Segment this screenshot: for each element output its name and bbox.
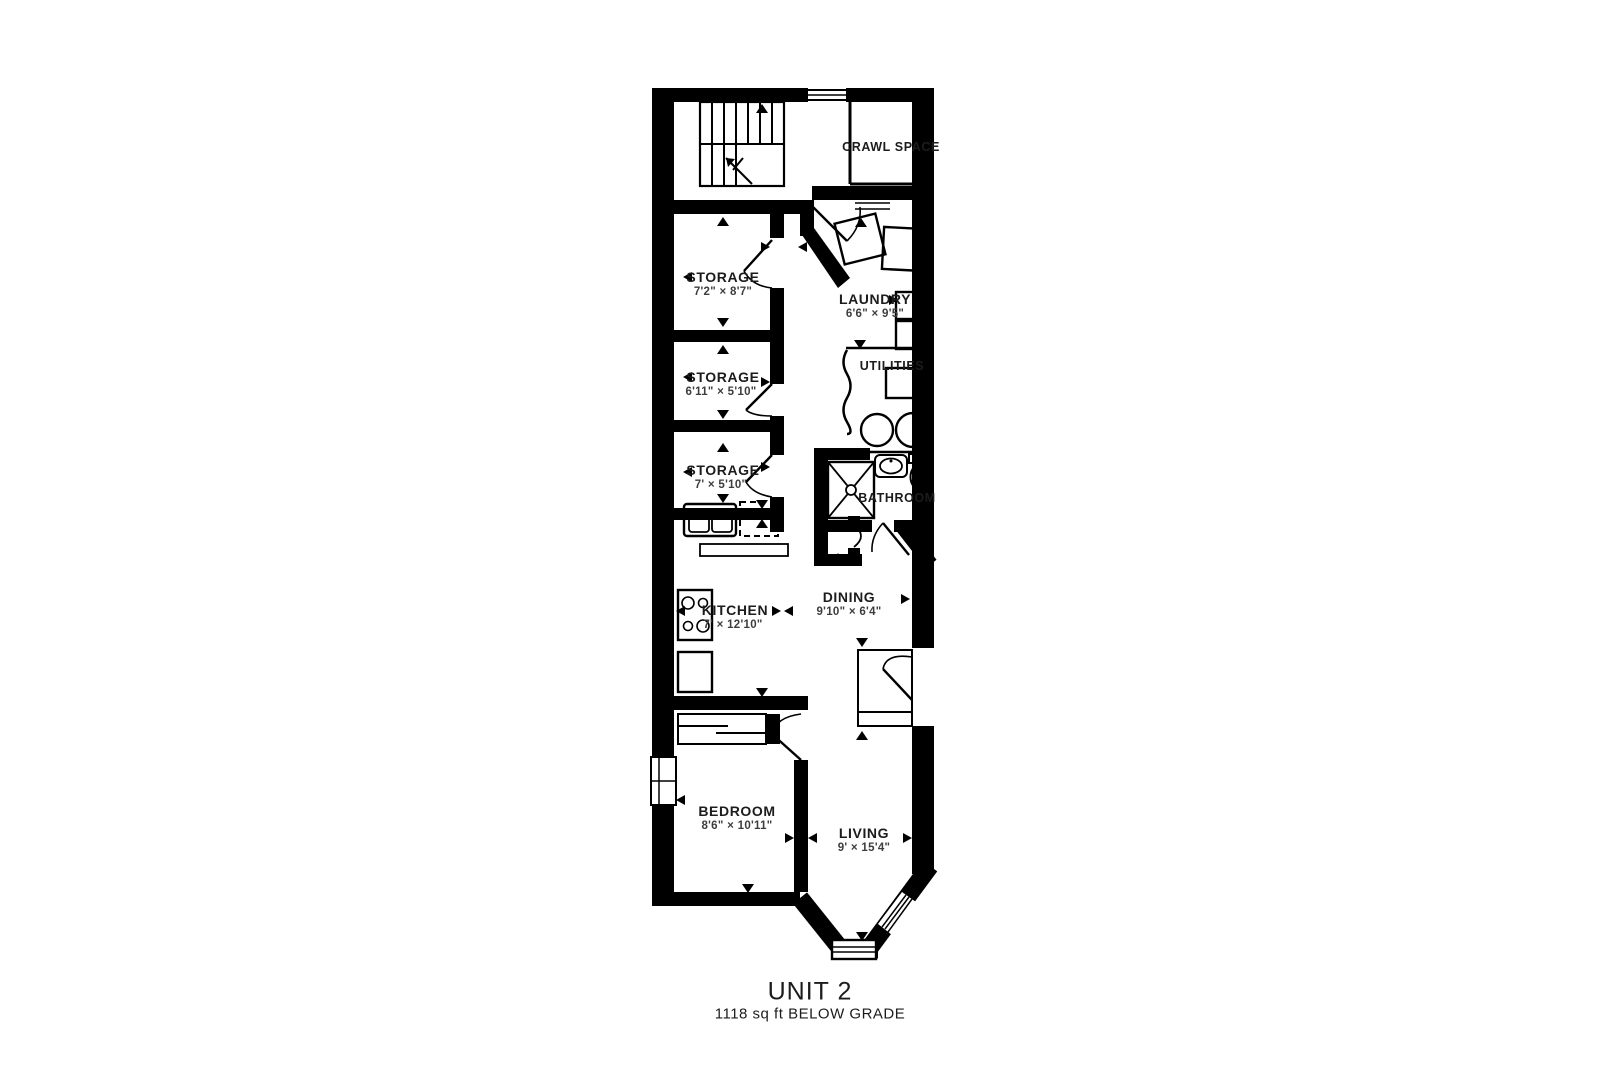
storage-3-label: STORAGE [686, 462, 759, 478]
dining-label: DINING [823, 589, 876, 605]
shower-icon [828, 462, 874, 518]
bedroom-window-icon [651, 757, 676, 805]
bedroom-label: BEDROOM [698, 803, 775, 819]
entry-door-arc [883, 656, 912, 669]
utilities-label: UTILITIES [860, 359, 924, 373]
unit-area-subtitle: 1118 sq ft BELOW GRADE [715, 1006, 906, 1023]
top-window-icon [806, 88, 848, 102]
crawl-space-label: CRAWL SPACE [842, 140, 940, 154]
bay-bottom-window-icon [832, 940, 876, 959]
fridge-icon [678, 652, 712, 692]
kitchen-label: KITCHEN [702, 602, 768, 618]
dining-dims: 9'10" × 6'4" [816, 606, 881, 618]
bathroom-label: BATHROOM [858, 491, 935, 505]
storage-2-label: STORAGE [686, 369, 759, 385]
bedroom-dims: 8'6" × 10'11" [701, 820, 772, 832]
entry-door-leaf [883, 669, 912, 700]
unit-title: UNIT 2 [768, 978, 853, 1007]
kitchen-counter [700, 544, 788, 556]
laundry-dims: 6'6" × 9'5" [846, 308, 904, 320]
bathroom-sink-icon [875, 455, 907, 477]
stair-hall-wall [652, 200, 860, 241]
entry-alcove [858, 650, 912, 726]
bedroom-closet [678, 714, 780, 744]
storage-2-dims: 6'11" × 5'10" [685, 386, 756, 398]
open-wall-squiggle [844, 350, 851, 434]
laundry-walls [800, 200, 850, 288]
laundry-label: LAUNDRY [839, 291, 911, 307]
floorplan-drawing [0, 0, 1620, 1080]
floorplan-page: CRAWL SPACE STORAGE 7'2" × 8'7" LAUNDRY … [0, 0, 1620, 1080]
storage-1-dims: 7'2" × 8'7" [694, 286, 752, 298]
living-dims: 9' × 15'4" [838, 842, 891, 854]
hall-closet [848, 516, 861, 556]
living-label: LIVING [839, 825, 889, 841]
kitchen-bottom-wall [652, 696, 808, 710]
kitchen-dims: 7' × 12'10" [703, 619, 762, 631]
storage-1-label: STORAGE [686, 269, 759, 285]
bedroom-living-wall [794, 760, 808, 892]
storage-3-dims: 7' × 5'10" [695, 479, 748, 491]
staircase [700, 102, 784, 186]
